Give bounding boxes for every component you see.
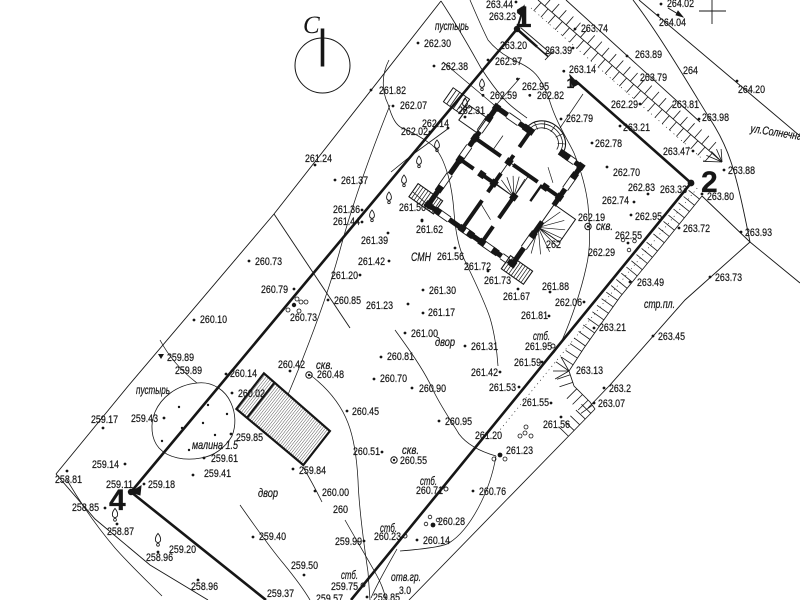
svg-text:261.88: 261.88 — [542, 281, 569, 293]
svg-text:263.21: 263.21 — [623, 122, 650, 134]
svg-text:260.10: 260.10 — [200, 314, 227, 326]
svg-text:263.79: 263.79 — [640, 72, 667, 84]
svg-text:259.41: 259.41 — [204, 468, 231, 480]
svg-text:скв.: скв. — [596, 221, 613, 233]
svg-text:261.31: 261.31 — [471, 341, 498, 353]
svg-text:259.89: 259.89 — [167, 352, 194, 364]
svg-text:262.70: 262.70 — [613, 167, 640, 179]
svg-text:261.42: 261.42 — [471, 367, 498, 379]
svg-text:261.20: 261.20 — [331, 270, 358, 282]
svg-text:261.82: 261.82 — [379, 85, 406, 97]
svg-text:258.96: 258.96 — [191, 581, 218, 593]
svg-text:262.06: 262.06 — [555, 297, 582, 309]
svg-text:262: 262 — [546, 239, 561, 251]
svg-text:261.23: 261.23 — [506, 445, 533, 457]
svg-text:262.29: 262.29 — [588, 247, 615, 259]
svg-text:262.38: 262.38 — [441, 61, 468, 73]
svg-text:263.80: 263.80 — [707, 191, 734, 203]
svg-text:262.78: 262.78 — [595, 138, 622, 150]
svg-text:263.2: 263.2 — [609, 383, 631, 395]
svg-text:261.62: 261.62 — [416, 224, 443, 236]
svg-text:262.83: 262.83 — [628, 182, 655, 194]
svg-text:262.55: 262.55 — [615, 230, 642, 242]
svg-text:отв.гр.: отв.гр. — [391, 572, 421, 584]
svg-text:262.59: 262.59 — [490, 90, 517, 102]
svg-text:262.07: 262.07 — [400, 100, 427, 112]
svg-text:скв.: скв. — [402, 445, 419, 457]
svg-text:259.43: 259.43 — [131, 413, 158, 425]
svg-text:261.55: 261.55 — [522, 397, 549, 409]
svg-text:261.59: 261.59 — [514, 357, 541, 369]
svg-text:258.96: 258.96 — [146, 552, 173, 564]
svg-text:263.33: 263.33 — [660, 184, 687, 196]
svg-text:262.29: 262.29 — [611, 99, 638, 111]
svg-text:259.61: 259.61 — [211, 453, 238, 465]
svg-text:259.85: 259.85 — [373, 592, 400, 600]
svg-text:260.90: 260.90 — [419, 383, 446, 395]
svg-text:скв.: скв. — [316, 360, 333, 372]
svg-text:259.14: 259.14 — [92, 459, 119, 471]
svg-text:262.30: 262.30 — [424, 38, 451, 50]
svg-text:261.30: 261.30 — [429, 285, 456, 297]
svg-text:260.14: 260.14 — [230, 368, 257, 380]
svg-text:264.20: 264.20 — [738, 84, 765, 96]
svg-text:263.21: 263.21 — [599, 322, 626, 334]
svg-text:262.79: 262.79 — [566, 113, 593, 125]
svg-text:261.24: 261.24 — [305, 153, 332, 165]
svg-text:пустырь: пустырь — [136, 385, 170, 397]
svg-text:259.89: 259.89 — [175, 365, 202, 377]
svg-text:260.79: 260.79 — [261, 284, 288, 296]
svg-text:260.28: 260.28 — [438, 516, 465, 528]
svg-text:260.73: 260.73 — [290, 312, 317, 324]
svg-text:263.89: 263.89 — [635, 49, 662, 61]
svg-text:стр.пл.: стр.пл. — [644, 299, 675, 311]
svg-text:260.81: 260.81 — [387, 351, 414, 363]
svg-text:1: 1 — [515, 1, 532, 34]
svg-text:261.20: 261.20 — [475, 430, 502, 442]
svg-text:263.45: 263.45 — [658, 331, 685, 343]
svg-text:261.81: 261.81 — [521, 310, 548, 322]
svg-text:стб.: стб. — [341, 570, 358, 582]
svg-text:261.00: 261.00 — [411, 328, 438, 340]
svg-text:259.99: 259.99 — [335, 536, 362, 548]
svg-text:264.02: 264.02 — [667, 0, 694, 10]
svg-text:261.53: 261.53 — [489, 382, 516, 394]
svg-text:C: C — [303, 12, 320, 39]
svg-text:261.36: 261.36 — [333, 204, 360, 216]
svg-text:259.17: 259.17 — [91, 414, 118, 426]
svg-text:258.81: 258.81 — [55, 474, 82, 486]
svg-text:263.81: 263.81 — [672, 99, 699, 111]
svg-text:260.95: 260.95 — [445, 416, 472, 428]
svg-text:пустырь: пустырь — [435, 21, 469, 33]
svg-text:260.14: 260.14 — [423, 535, 450, 547]
svg-text:263.14: 263.14 — [569, 64, 596, 76]
svg-text:261.50: 261.50 — [399, 202, 426, 214]
svg-text:261.56: 261.56 — [437, 251, 464, 263]
svg-text:260: 260 — [333, 504, 348, 516]
svg-text:261.39: 261.39 — [361, 235, 388, 247]
svg-text:259.11: 259.11 — [106, 479, 133, 491]
svg-text:СМН: СМН — [411, 252, 432, 264]
svg-text:262.74: 262.74 — [602, 195, 629, 207]
svg-text:стб.: стб. — [420, 476, 437, 488]
svg-text:262.31: 262.31 — [458, 105, 485, 117]
svg-text:263.39: 263.39 — [545, 45, 572, 57]
svg-text:263.13: 263.13 — [576, 365, 603, 377]
svg-text:259.50: 259.50 — [291, 560, 318, 572]
svg-text:258.87: 258.87 — [107, 526, 134, 538]
svg-text:264.04: 264.04 — [659, 17, 686, 29]
svg-text:260.42: 260.42 — [278, 359, 305, 371]
svg-text:260.45: 260.45 — [352, 406, 379, 418]
svg-text:259.18: 259.18 — [148, 479, 175, 491]
svg-text:малина 1.5: малина 1.5 — [192, 440, 238, 452]
svg-text:261.37: 261.37 — [341, 175, 368, 187]
svg-text:263.49: 263.49 — [637, 277, 664, 289]
svg-text:261.44: 261.44 — [333, 216, 360, 228]
svg-text:259.37: 259.37 — [267, 588, 294, 600]
svg-text:260.73: 260.73 — [255, 256, 282, 268]
svg-text:263.93: 263.93 — [745, 227, 772, 239]
svg-text:258.85: 258.85 — [72, 502, 99, 514]
svg-text:263.98: 263.98 — [702, 112, 729, 124]
svg-text:260.76: 260.76 — [479, 486, 506, 498]
svg-text:261.73: 261.73 — [484, 275, 511, 287]
svg-text:263.74: 263.74 — [581, 23, 608, 35]
svg-text:259.40: 259.40 — [259, 531, 286, 543]
svg-text:260.70: 260.70 — [380, 373, 407, 385]
svg-text:264: 264 — [683, 65, 698, 77]
svg-text:262.02: 262.02 — [401, 126, 428, 138]
svg-text:двор: двор — [435, 337, 455, 349]
svg-text:261.56: 261.56 — [543, 419, 570, 431]
svg-text:3.0: 3.0 — [399, 585, 411, 597]
svg-text:260.00: 260.00 — [322, 487, 349, 499]
svg-text:260.02: 260.02 — [238, 388, 265, 400]
svg-text:259.20: 259.20 — [169, 544, 196, 556]
svg-text:263.23: 263.23 — [489, 11, 516, 23]
svg-text:263.20: 263.20 — [500, 40, 527, 52]
svg-text:263.47: 263.47 — [663, 146, 690, 158]
svg-text:263.73: 263.73 — [715, 272, 742, 284]
svg-text:стб.: стб. — [533, 331, 550, 343]
svg-text:261.23: 261.23 — [366, 300, 393, 312]
svg-text:259.75: 259.75 — [331, 581, 358, 593]
svg-text:263.72: 263.72 — [683, 223, 710, 235]
svg-text:262.97: 262.97 — [495, 56, 522, 68]
svg-text:259.57: 259.57 — [316, 593, 343, 600]
svg-text:263.07: 263.07 — [598, 398, 625, 410]
svg-text:262.95: 262.95 — [635, 211, 662, 223]
svg-text:262.82: 262.82 — [537, 90, 564, 102]
svg-text:261.42: 261.42 — [358, 256, 385, 268]
svg-text:259.84: 259.84 — [299, 465, 326, 477]
svg-text:263.88: 263.88 — [728, 165, 755, 177]
svg-text:стб.: стб. — [380, 523, 397, 535]
svg-text:259.85: 259.85 — [236, 432, 263, 444]
svg-text:263.44: 263.44 — [486, 0, 513, 11]
svg-text:260.85: 260.85 — [334, 295, 361, 307]
svg-text:261.17: 261.17 — [428, 307, 455, 319]
svg-text:261.67: 261.67 — [503, 291, 530, 303]
svg-text:двор: двор — [258, 488, 278, 500]
svg-text:260.51: 260.51 — [353, 446, 380, 458]
